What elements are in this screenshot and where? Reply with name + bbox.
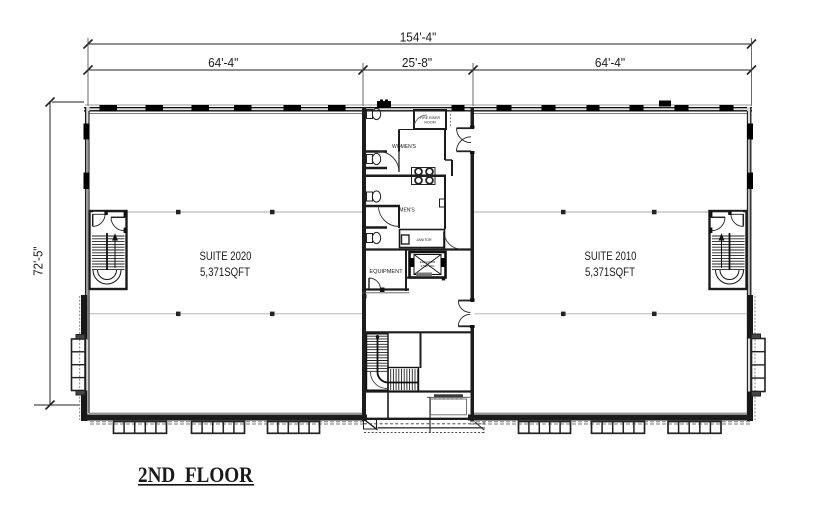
svg-text:SUITE 2020: SUITE 2020 <box>200 249 252 263</box>
svg-text:FIRE RISER: FIRE RISER <box>420 116 441 120</box>
svg-text:5,371SQFT: 5,371SQFT <box>585 265 636 279</box>
svg-text:64'-4": 64'-4" <box>595 56 625 70</box>
svg-text:WOMEN'S: WOMEN'S <box>392 144 417 150</box>
svg-text:EQUIPMENT: EQUIPMENT <box>369 269 403 275</box>
svg-text:5,371SQFT: 5,371SQFT <box>200 265 251 279</box>
svg-text:25'-8": 25'-8" <box>402 56 432 70</box>
svg-text:JANITOR: JANITOR <box>416 238 432 242</box>
svg-text:3,500 LBS: 3,500 LBS <box>420 264 434 268</box>
svg-text:154'-4": 154'-4" <box>400 31 437 45</box>
svg-text:64'-4": 64'-4" <box>208 56 238 70</box>
svg-text:2ND FLOOR: 2ND FLOOR <box>138 462 254 487</box>
svg-text:MEN'S: MEN'S <box>399 208 415 214</box>
svg-text:SUITE 2010: SUITE 2010 <box>585 249 637 263</box>
svg-text:72'-5": 72'-5" <box>32 247 46 276</box>
svg-text:ROOM: ROOM <box>424 121 435 125</box>
